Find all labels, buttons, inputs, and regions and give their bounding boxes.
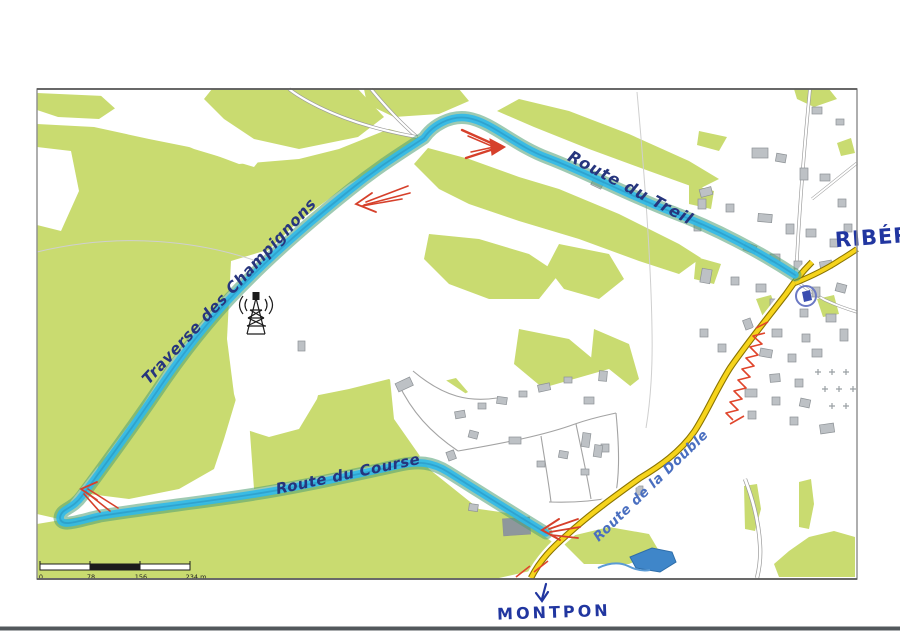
down-arrow-icon — [536, 584, 548, 601]
scan-edge — [0, 627, 900, 631]
label-montpon: MONTPON — [497, 601, 611, 624]
map-canvas: 0 78 156 234 m Traverse des Champignons … — [0, 0, 900, 636]
scanned-map-page: 0 78 156 234 m Traverse des Champignons … — [0, 0, 900, 636]
